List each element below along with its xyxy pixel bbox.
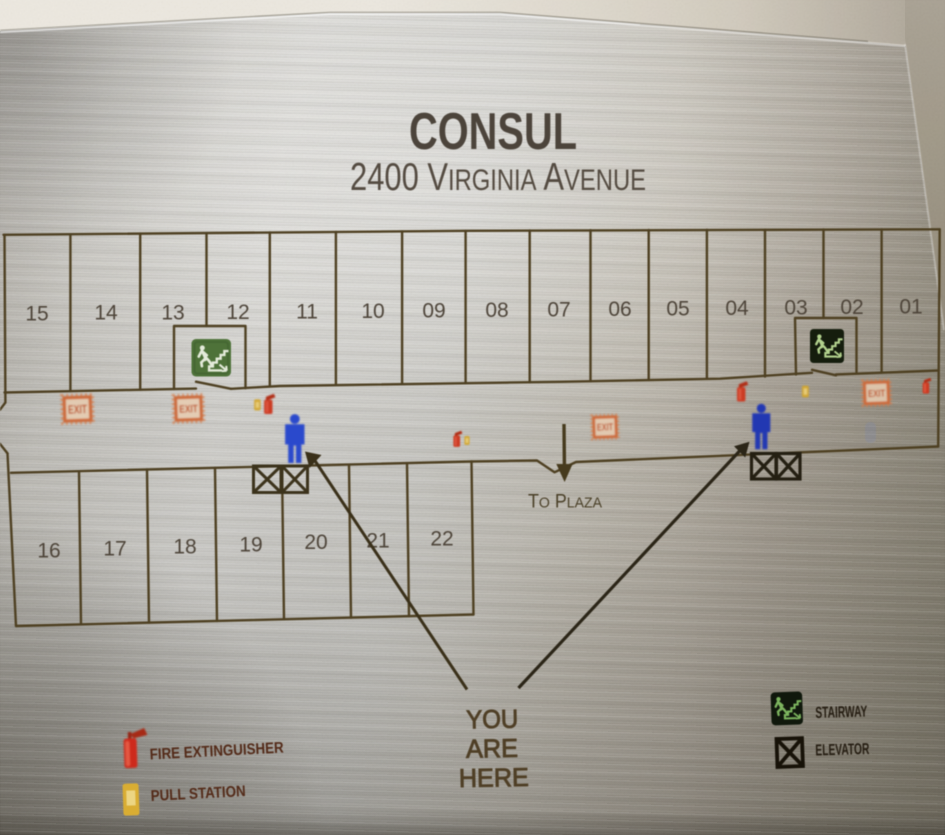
svg-text:22: 22	[430, 528, 453, 551]
svg-text:05: 05	[666, 298, 689, 321]
svg-text:13: 13	[161, 302, 184, 325]
svg-text:15: 15	[25, 303, 48, 326]
svg-text:CONSUL: CONSUL	[409, 103, 577, 161]
svg-text:07: 07	[547, 299, 570, 322]
svg-text:19: 19	[239, 534, 262, 557]
svg-text:HERE: HERE	[459, 762, 530, 793]
svg-text:20: 20	[304, 531, 327, 554]
svg-text:18: 18	[173, 536, 196, 559]
svg-text:10: 10	[361, 300, 384, 323]
svg-text:04: 04	[725, 297, 749, 320]
svg-text:14: 14	[94, 302, 118, 325]
svg-text:TO PLAZA: TO PLAZA	[528, 492, 602, 513]
svg-text:16: 16	[37, 540, 60, 563]
svg-text:01: 01	[899, 296, 922, 319]
svg-text:06: 06	[608, 298, 631, 321]
svg-text:09: 09	[422, 300, 445, 323]
svg-text:02: 02	[840, 296, 863, 319]
svg-text:08: 08	[485, 299, 508, 322]
svg-text:STAIRWAY: STAIRWAY	[815, 704, 868, 722]
svg-text:12: 12	[226, 301, 249, 324]
svg-text:17: 17	[103, 538, 126, 561]
svg-text:03: 03	[784, 297, 807, 320]
svg-text:ARE: ARE	[466, 733, 519, 764]
svg-text:YOU: YOU	[466, 704, 519, 735]
svg-text:ELEVATOR: ELEVATOR	[815, 741, 870, 760]
svg-text:11: 11	[296, 301, 318, 324]
